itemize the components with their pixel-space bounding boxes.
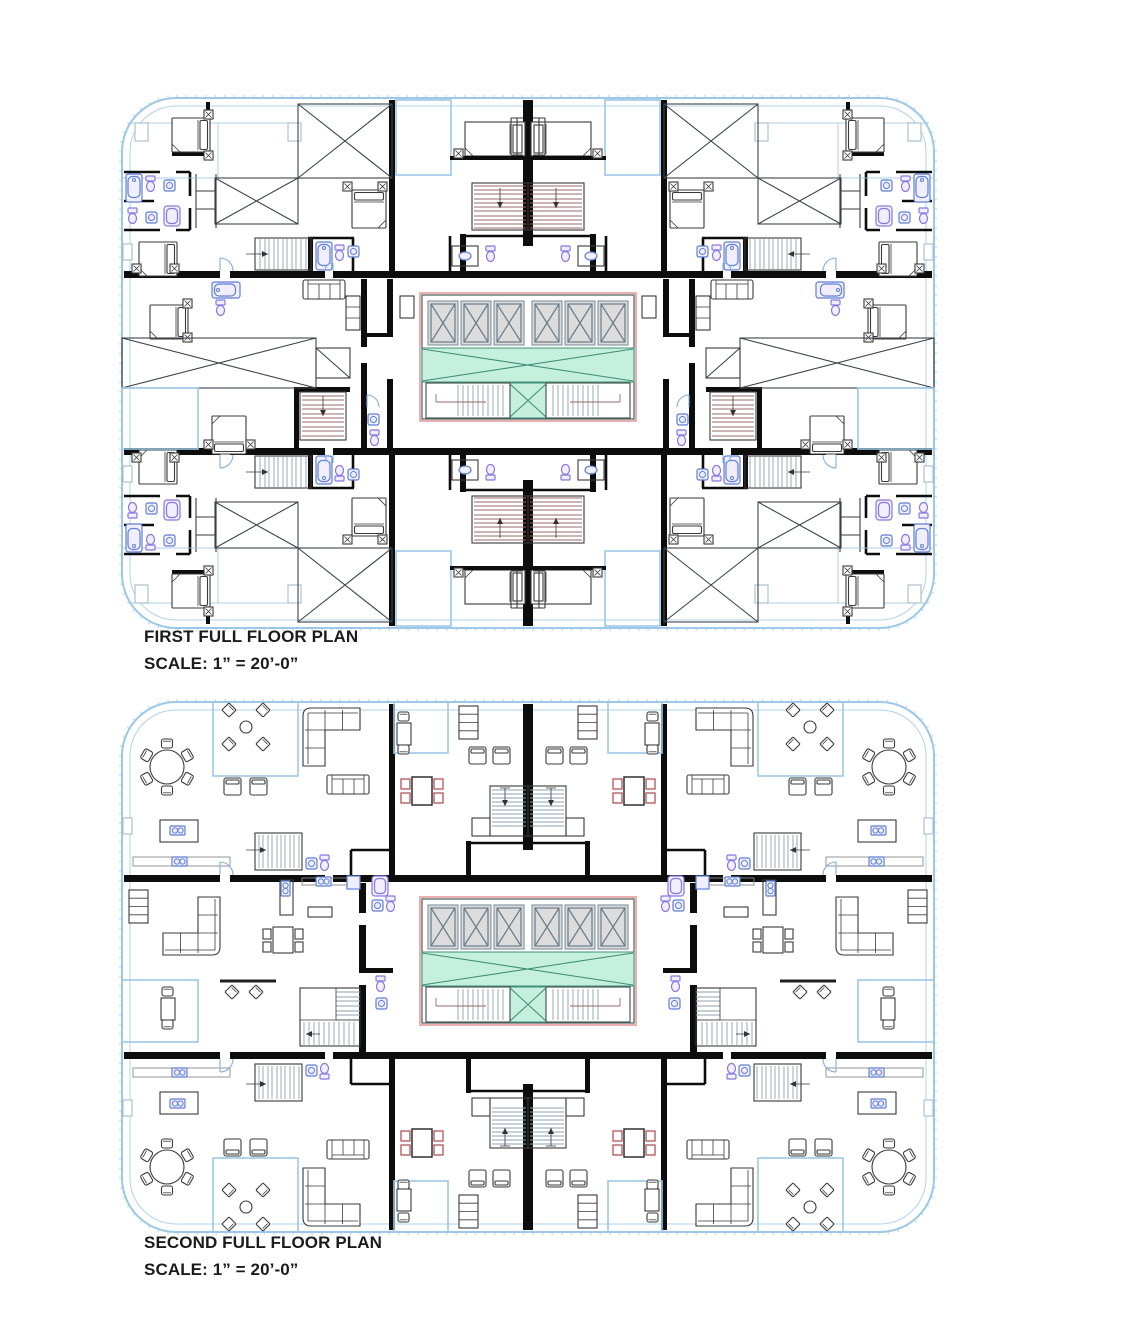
second-plan-label: SECOND FULL FLOOR PLAN SCALE: 1” = 20’-0… (144, 1233, 382, 1280)
plan-title: SECOND FULL FLOOR PLAN (144, 1233, 382, 1253)
plan-title: FIRST FULL FLOOR PLAN (144, 627, 358, 647)
second-floor-plan (122, 702, 934, 1232)
plan-scale: SCALE: 1” = 20’-0” (144, 654, 358, 674)
first-floor-plan (122, 98, 934, 628)
architectural-sheet: FIRST FULL FLOOR PLAN SCALE: 1” = 20’-0”… (0, 0, 1122, 1339)
plan-scale: SCALE: 1” = 20’-0” (144, 1260, 382, 1280)
first-plan-label: FIRST FULL FLOOR PLAN SCALE: 1” = 20’-0” (144, 627, 358, 674)
